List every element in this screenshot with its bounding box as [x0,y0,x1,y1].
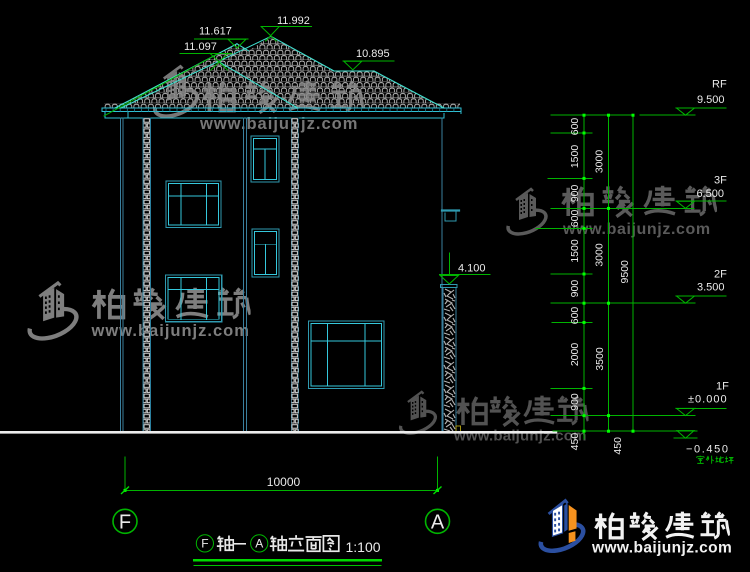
svg-text:±0.000: ±0.000 [688,394,728,406]
svg-text:10000: 10000 [267,475,301,489]
svg-text:900: 900 [569,280,581,298]
svg-text:3000: 3000 [593,150,605,174]
svg-text:9500: 9500 [619,260,631,284]
svg-text:1500: 1500 [569,145,581,169]
svg-text:900: 900 [569,184,581,202]
svg-text:2000: 2000 [569,343,581,367]
svg-text:11.992: 11.992 [277,15,310,27]
svg-text:4.100: 4.100 [458,263,486,275]
svg-text:F: F [201,537,208,551]
svg-text:RF: RF [712,79,727,91]
svg-text:www.baijunjz.com: www.baijunjz.com [453,428,587,445]
svg-text:3500: 3500 [594,347,606,371]
svg-text:600: 600 [569,118,581,136]
svg-text:3000: 3000 [593,243,605,267]
svg-text:900: 900 [569,393,581,411]
svg-text:450: 450 [612,437,624,455]
svg-text:A: A [255,537,263,551]
svg-text:1:100: 1:100 [346,539,381,555]
svg-text:600: 600 [569,209,581,227]
svg-text:F: F [119,511,131,533]
svg-text:3F: 3F [714,175,727,187]
svg-text:600: 600 [569,307,581,325]
svg-text:www.baijunjz.com: www.baijunjz.com [91,322,250,340]
svg-text:11.617: 11.617 [199,26,232,38]
svg-text:450: 450 [569,433,581,451]
svg-text:A: A [431,511,445,533]
svg-text:6.500: 6.500 [697,188,725,200]
svg-text:9.500: 9.500 [697,94,725,106]
svg-text:1F: 1F [716,381,729,393]
svg-text:11.097: 11.097 [184,41,217,53]
svg-text:www.baijunjz.com: www.baijunjz.com [591,540,732,557]
svg-text:3.500: 3.500 [697,282,725,294]
svg-text:2F: 2F [714,269,727,281]
svg-text:10.895: 10.895 [356,48,390,60]
svg-text:1500: 1500 [569,239,581,263]
svg-text:−0.450: −0.450 [686,444,730,456]
